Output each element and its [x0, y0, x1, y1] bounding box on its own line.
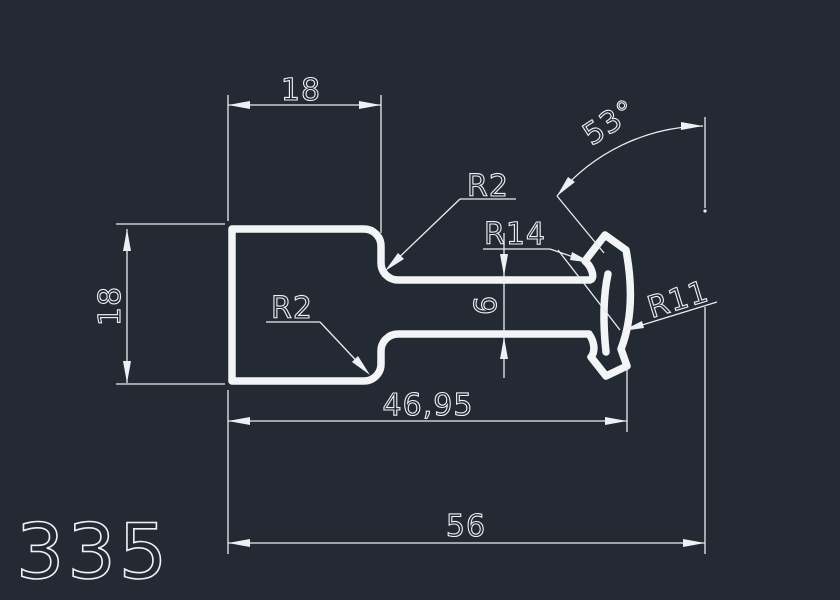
radius-text-outer-arc: R11 — [643, 274, 713, 326]
dim-length-to-head: 46,95 — [228, 368, 627, 554]
dim-text-neck-thickness: 6 — [469, 295, 504, 315]
arrowhead — [359, 101, 381, 109]
label-r11: R11 — [622, 274, 717, 331]
ext-line-dot — [703, 209, 706, 212]
dim-left-height: 18 — [93, 224, 225, 384]
dim-text-top-width: 18 — [281, 73, 321, 108]
arrowhead — [123, 361, 131, 383]
angle-arc — [557, 126, 703, 196]
label-r2-bottom: R2 — [266, 291, 370, 375]
dim-top-width: 18 — [228, 73, 381, 233]
dim-text-length-to-head: 46,95 — [383, 388, 474, 423]
arrowhead — [605, 417, 627, 425]
sheet-number: 335 — [16, 507, 170, 596]
radius-text-inner-arc: R14 — [484, 217, 546, 252]
dim-text-left-height: 18 — [93, 286, 128, 326]
cad-drawing: 18 18 6 53° 46,95 — [0, 0, 840, 600]
dim-overall-length: 56 — [228, 307, 705, 554]
dim-neck-thickness: 6 — [469, 233, 508, 378]
angle-side-line — [557, 196, 604, 253]
arrowhead — [681, 122, 703, 130]
radius-text-bottom-fillet: R2 — [271, 291, 313, 326]
arrowhead — [500, 254, 508, 276]
radius-text-top-fillet: R2 — [467, 169, 509, 204]
dim-text-overall-length: 56 — [446, 509, 486, 544]
arrowhead — [228, 101, 250, 109]
arrowhead — [228, 539, 250, 547]
arrowhead — [228, 417, 250, 425]
cad-canvas: 18 18 6 53° 46,95 — [0, 0, 840, 600]
arrowhead — [500, 337, 508, 359]
arrowhead — [123, 229, 131, 251]
arrowhead — [683, 539, 705, 547]
label-r14: R14 — [483, 217, 592, 263]
dim-text-head-angle: 53° — [577, 93, 643, 153]
